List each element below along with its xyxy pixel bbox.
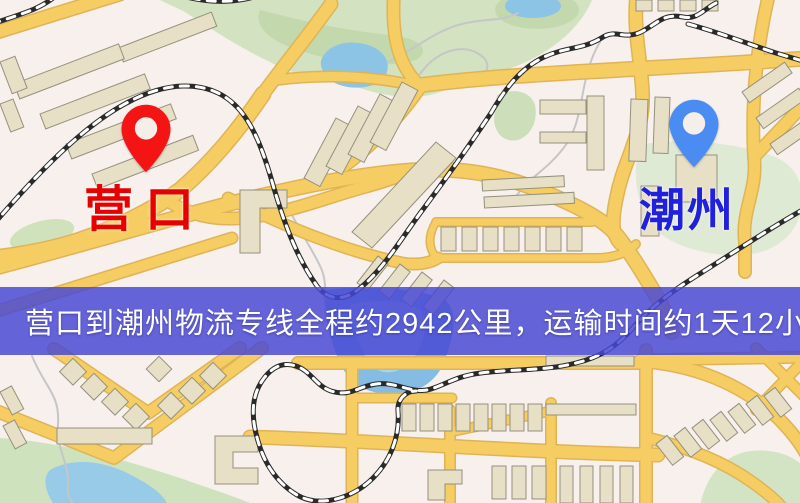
map-canvas[interactable]	[0, 0, 800, 503]
origin-map-pin-icon[interactable]	[117, 103, 175, 173]
destination-pin-hole	[683, 112, 705, 134]
destination-city-label: 潮州	[639, 174, 735, 240]
origin-city-label: 营口	[84, 170, 206, 241]
origin-pin-hole	[135, 117, 157, 139]
destination-map-pin-icon[interactable]	[665, 98, 723, 168]
route-info-text: 营口到潮州物流专线全程约2942公里，运输时间约1天12小时.	[0, 300, 800, 342]
map-screenshot: 营口到潮州物流专线全程约2942公里，运输时间约1天12小时. 营口 潮州	[0, 0, 800, 503]
route-info-banner: 营口到潮州物流专线全程约2942公里，运输时间约1天12小时.	[0, 287, 800, 355]
